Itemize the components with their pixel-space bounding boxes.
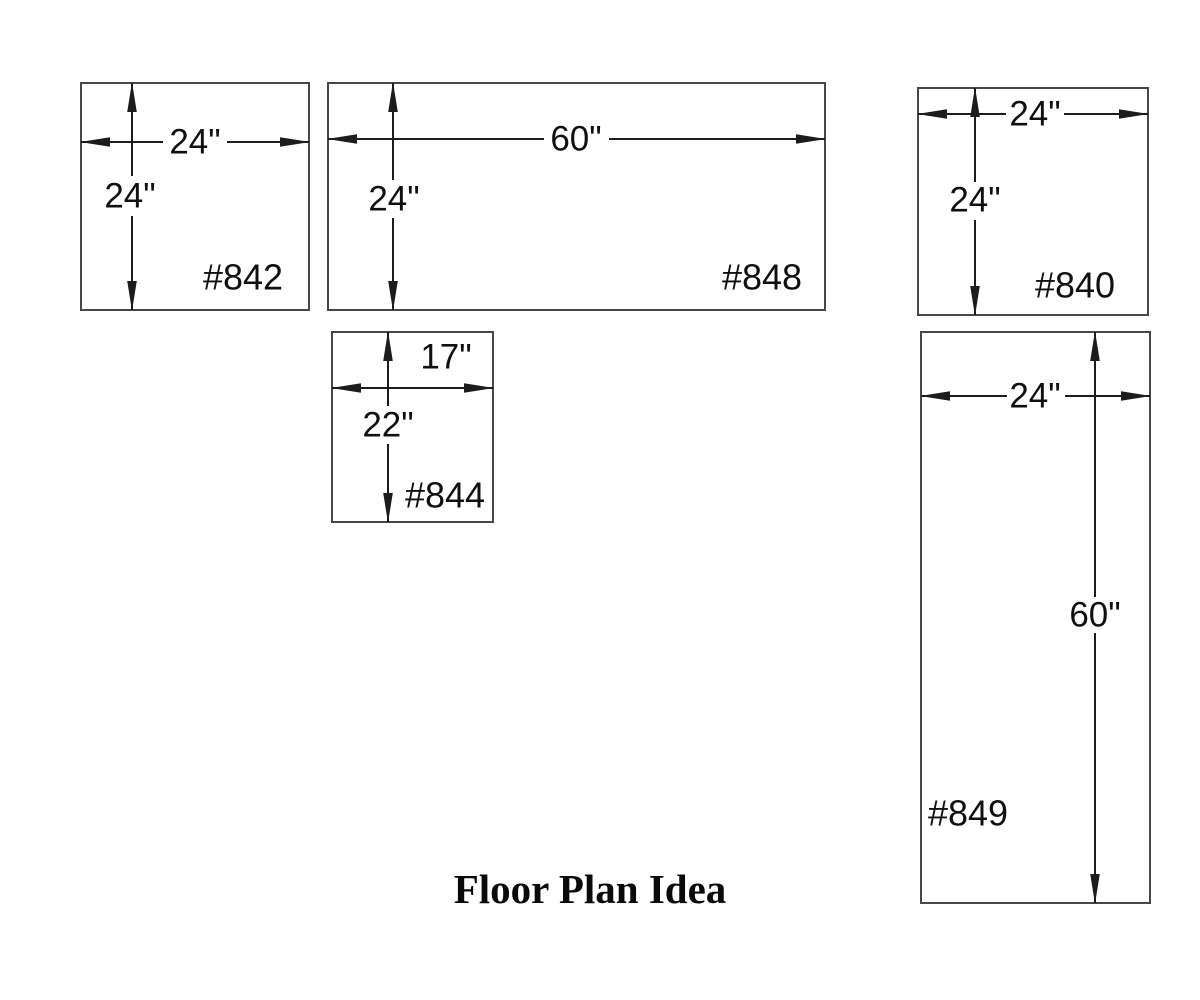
cabinet-849-width-label: 24" [1009,377,1060,416]
cabinet-842-id-label: #842 [203,257,283,298]
floor-plan-canvas: 24" 24" #842 60" 24" #848 24" 24" #840 [0,0,1200,1000]
cabinet-842-width-label: 24" [169,123,220,162]
cabinet-844-width-label: 17" [420,338,471,377]
cabinet-848-height-label: 24" [368,180,419,219]
cabinet-848-width-label: 60" [550,120,601,159]
drawing-title: Floor Plan Idea [454,866,727,912]
cabinet-840-width-label: 24" [1009,95,1060,134]
cabinet-840-height-label: 24" [949,181,1000,220]
cabinet-849-id-label: #849 [928,793,1008,834]
cabinet-848: 60" 24" #848 [328,83,825,310]
cabinet-840-id-label: #840 [1035,265,1115,306]
cabinet-840: 24" 24" #840 [918,88,1148,315]
cabinet-849: 24" 60" #849 [921,332,1150,903]
cabinet-842-height-label: 24" [104,177,155,216]
cabinet-848-id-label: #848 [722,257,802,298]
floor-plan-drawing: 24" 24" #842 60" 24" #848 24" 24" #840 [0,0,1200,1000]
cabinet-849-height-label: 60" [1069,596,1120,635]
cabinet-842: 24" 24" #842 [81,83,309,310]
cabinet-844: 17" 22" #844 [332,332,493,522]
cabinet-844-height-label: 22" [362,406,413,445]
cabinet-844-id-label: #844 [405,475,485,516]
